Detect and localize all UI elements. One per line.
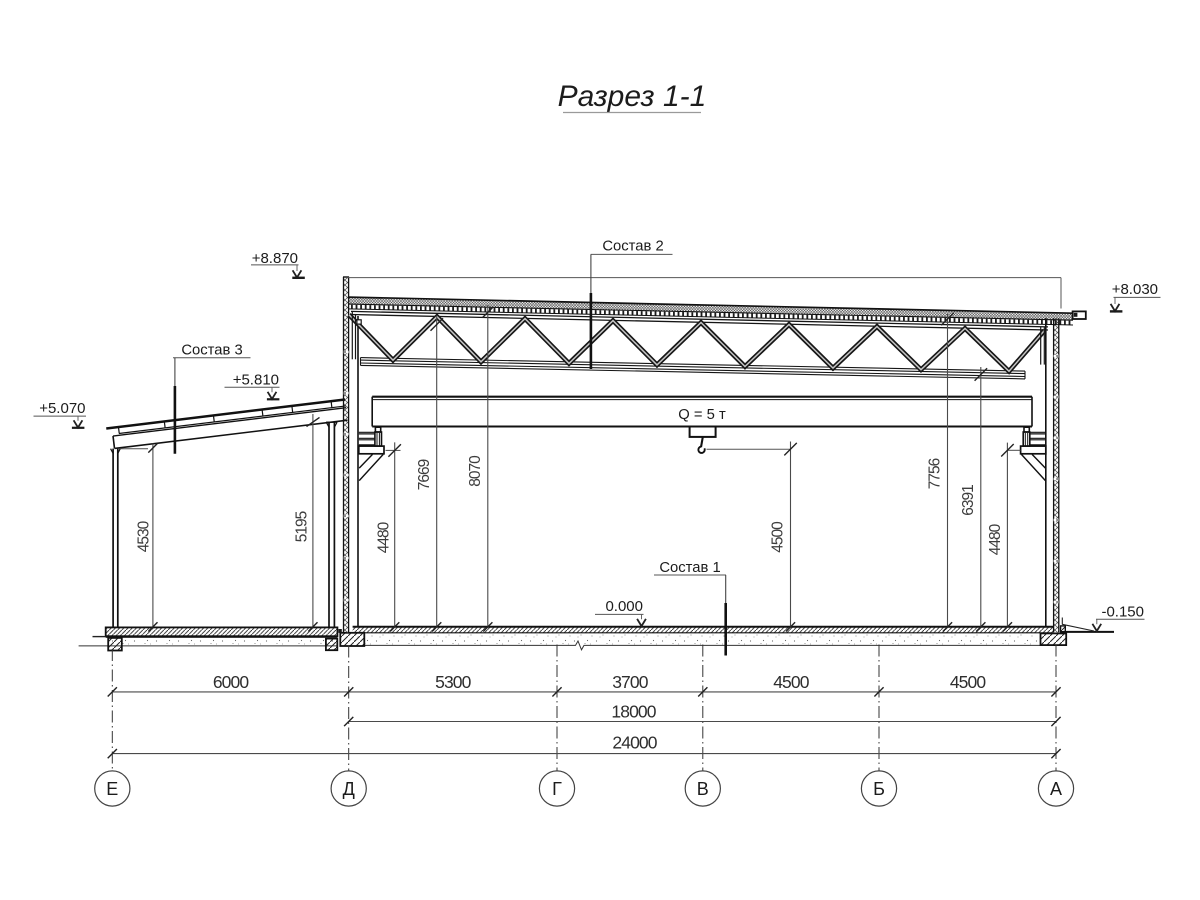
svg-text:Состав 3: Состав 3 bbox=[181, 343, 242, 359]
svg-text:Состав 1: Состав 1 bbox=[659, 560, 720, 576]
svg-text:24000: 24000 bbox=[612, 733, 657, 753]
svg-text:Д: Д bbox=[343, 779, 355, 799]
svg-text:3700: 3700 bbox=[612, 672, 648, 692]
svg-text:+5.070: +5.070 bbox=[39, 400, 85, 417]
svg-text:7756: 7756 bbox=[927, 458, 944, 489]
svg-text:0.000: 0.000 bbox=[605, 598, 643, 615]
svg-text:4500: 4500 bbox=[773, 672, 809, 692]
svg-text:В: В bbox=[697, 779, 709, 799]
svg-text:Г: Г bbox=[552, 779, 562, 799]
svg-text:18000: 18000 bbox=[611, 702, 656, 722]
svg-text:Разрез 1-1: Разрез 1-1 bbox=[558, 80, 707, 113]
svg-text:+8.030: +8.030 bbox=[1112, 281, 1158, 298]
svg-text:Е: Е bbox=[106, 779, 118, 799]
svg-text:Б: Б bbox=[873, 779, 885, 799]
svg-text:Q = 5 т: Q = 5 т bbox=[678, 407, 726, 423]
svg-text:5195: 5195 bbox=[294, 511, 311, 542]
svg-text:6000: 6000 bbox=[213, 672, 249, 692]
svg-text:7669: 7669 bbox=[416, 459, 433, 490]
svg-text:4500: 4500 bbox=[950, 672, 986, 692]
svg-text:Состав 2: Состав 2 bbox=[602, 239, 663, 255]
svg-text:+5.810: +5.810 bbox=[233, 372, 279, 389]
svg-text:8070: 8070 bbox=[467, 455, 484, 487]
svg-text:4480: 4480 bbox=[987, 523, 1004, 555]
svg-text:5300: 5300 bbox=[435, 672, 471, 692]
svg-text:4480: 4480 bbox=[376, 521, 393, 553]
svg-text:4500: 4500 bbox=[770, 521, 787, 553]
svg-text:-0.150: -0.150 bbox=[1101, 603, 1144, 620]
svg-text:А: А bbox=[1050, 779, 1062, 799]
svg-text:6391: 6391 bbox=[960, 485, 977, 516]
svg-text:4530: 4530 bbox=[135, 520, 152, 552]
